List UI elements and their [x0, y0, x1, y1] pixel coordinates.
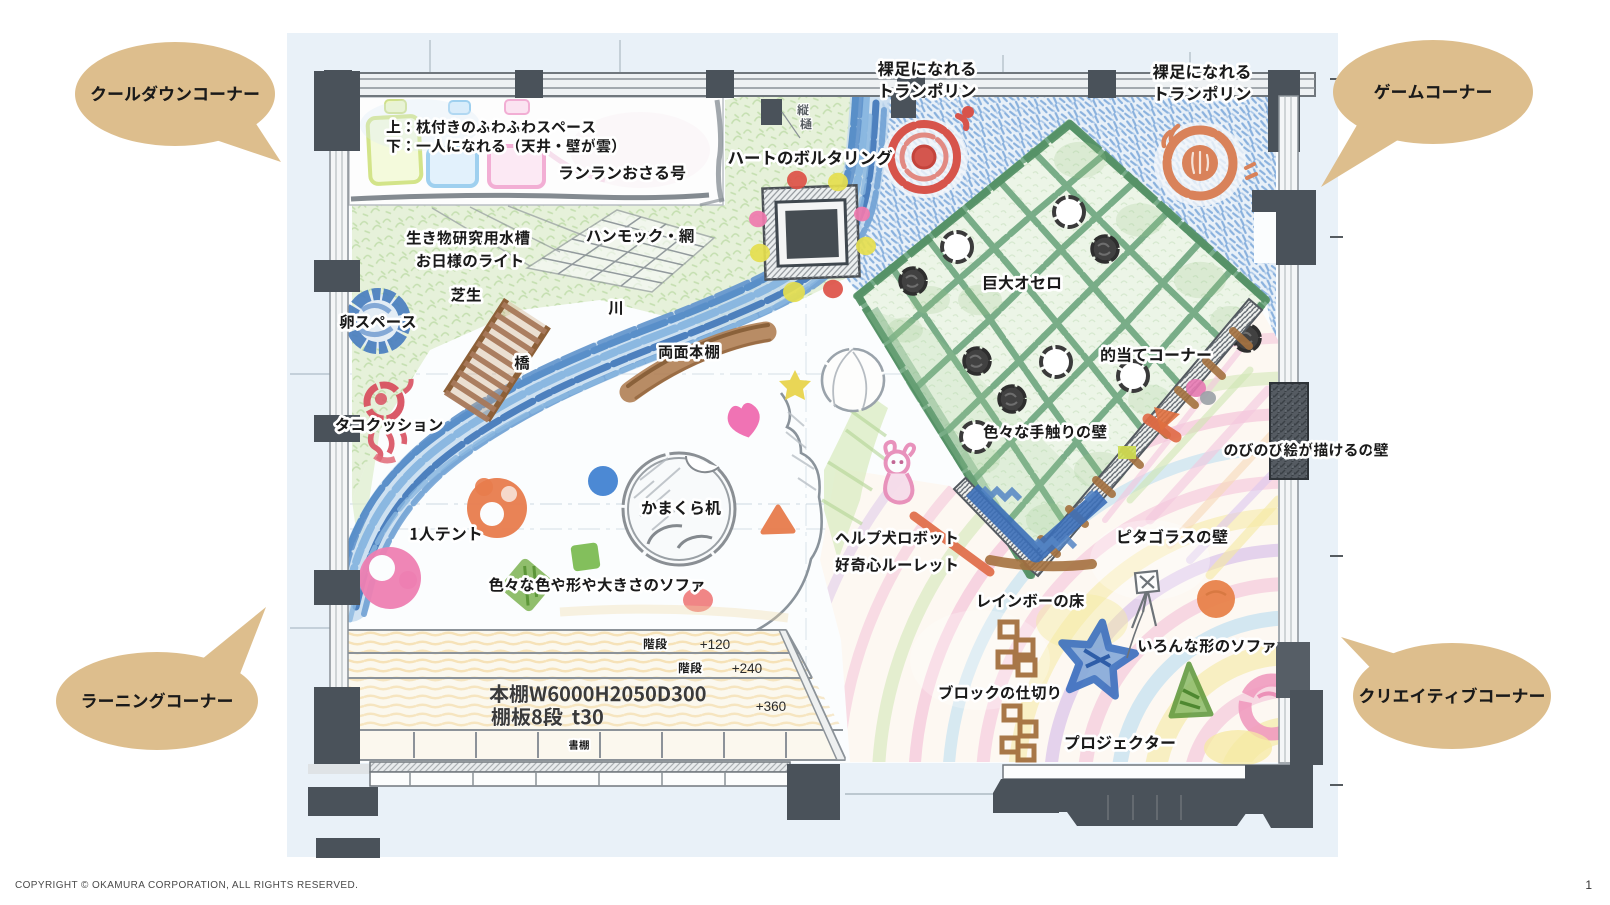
svg-text:1: 1	[1585, 878, 1592, 892]
svg-text:+240: +240	[732, 661, 762, 676]
svg-text:+120: +120	[700, 637, 730, 652]
svg-text:COPYRIGHT © OKAMURA CORPORATIO: COPYRIGHT © OKAMURA CORPORATION, ALL RIG…	[15, 880, 358, 891]
svg-text:+360: +360	[756, 699, 786, 714]
